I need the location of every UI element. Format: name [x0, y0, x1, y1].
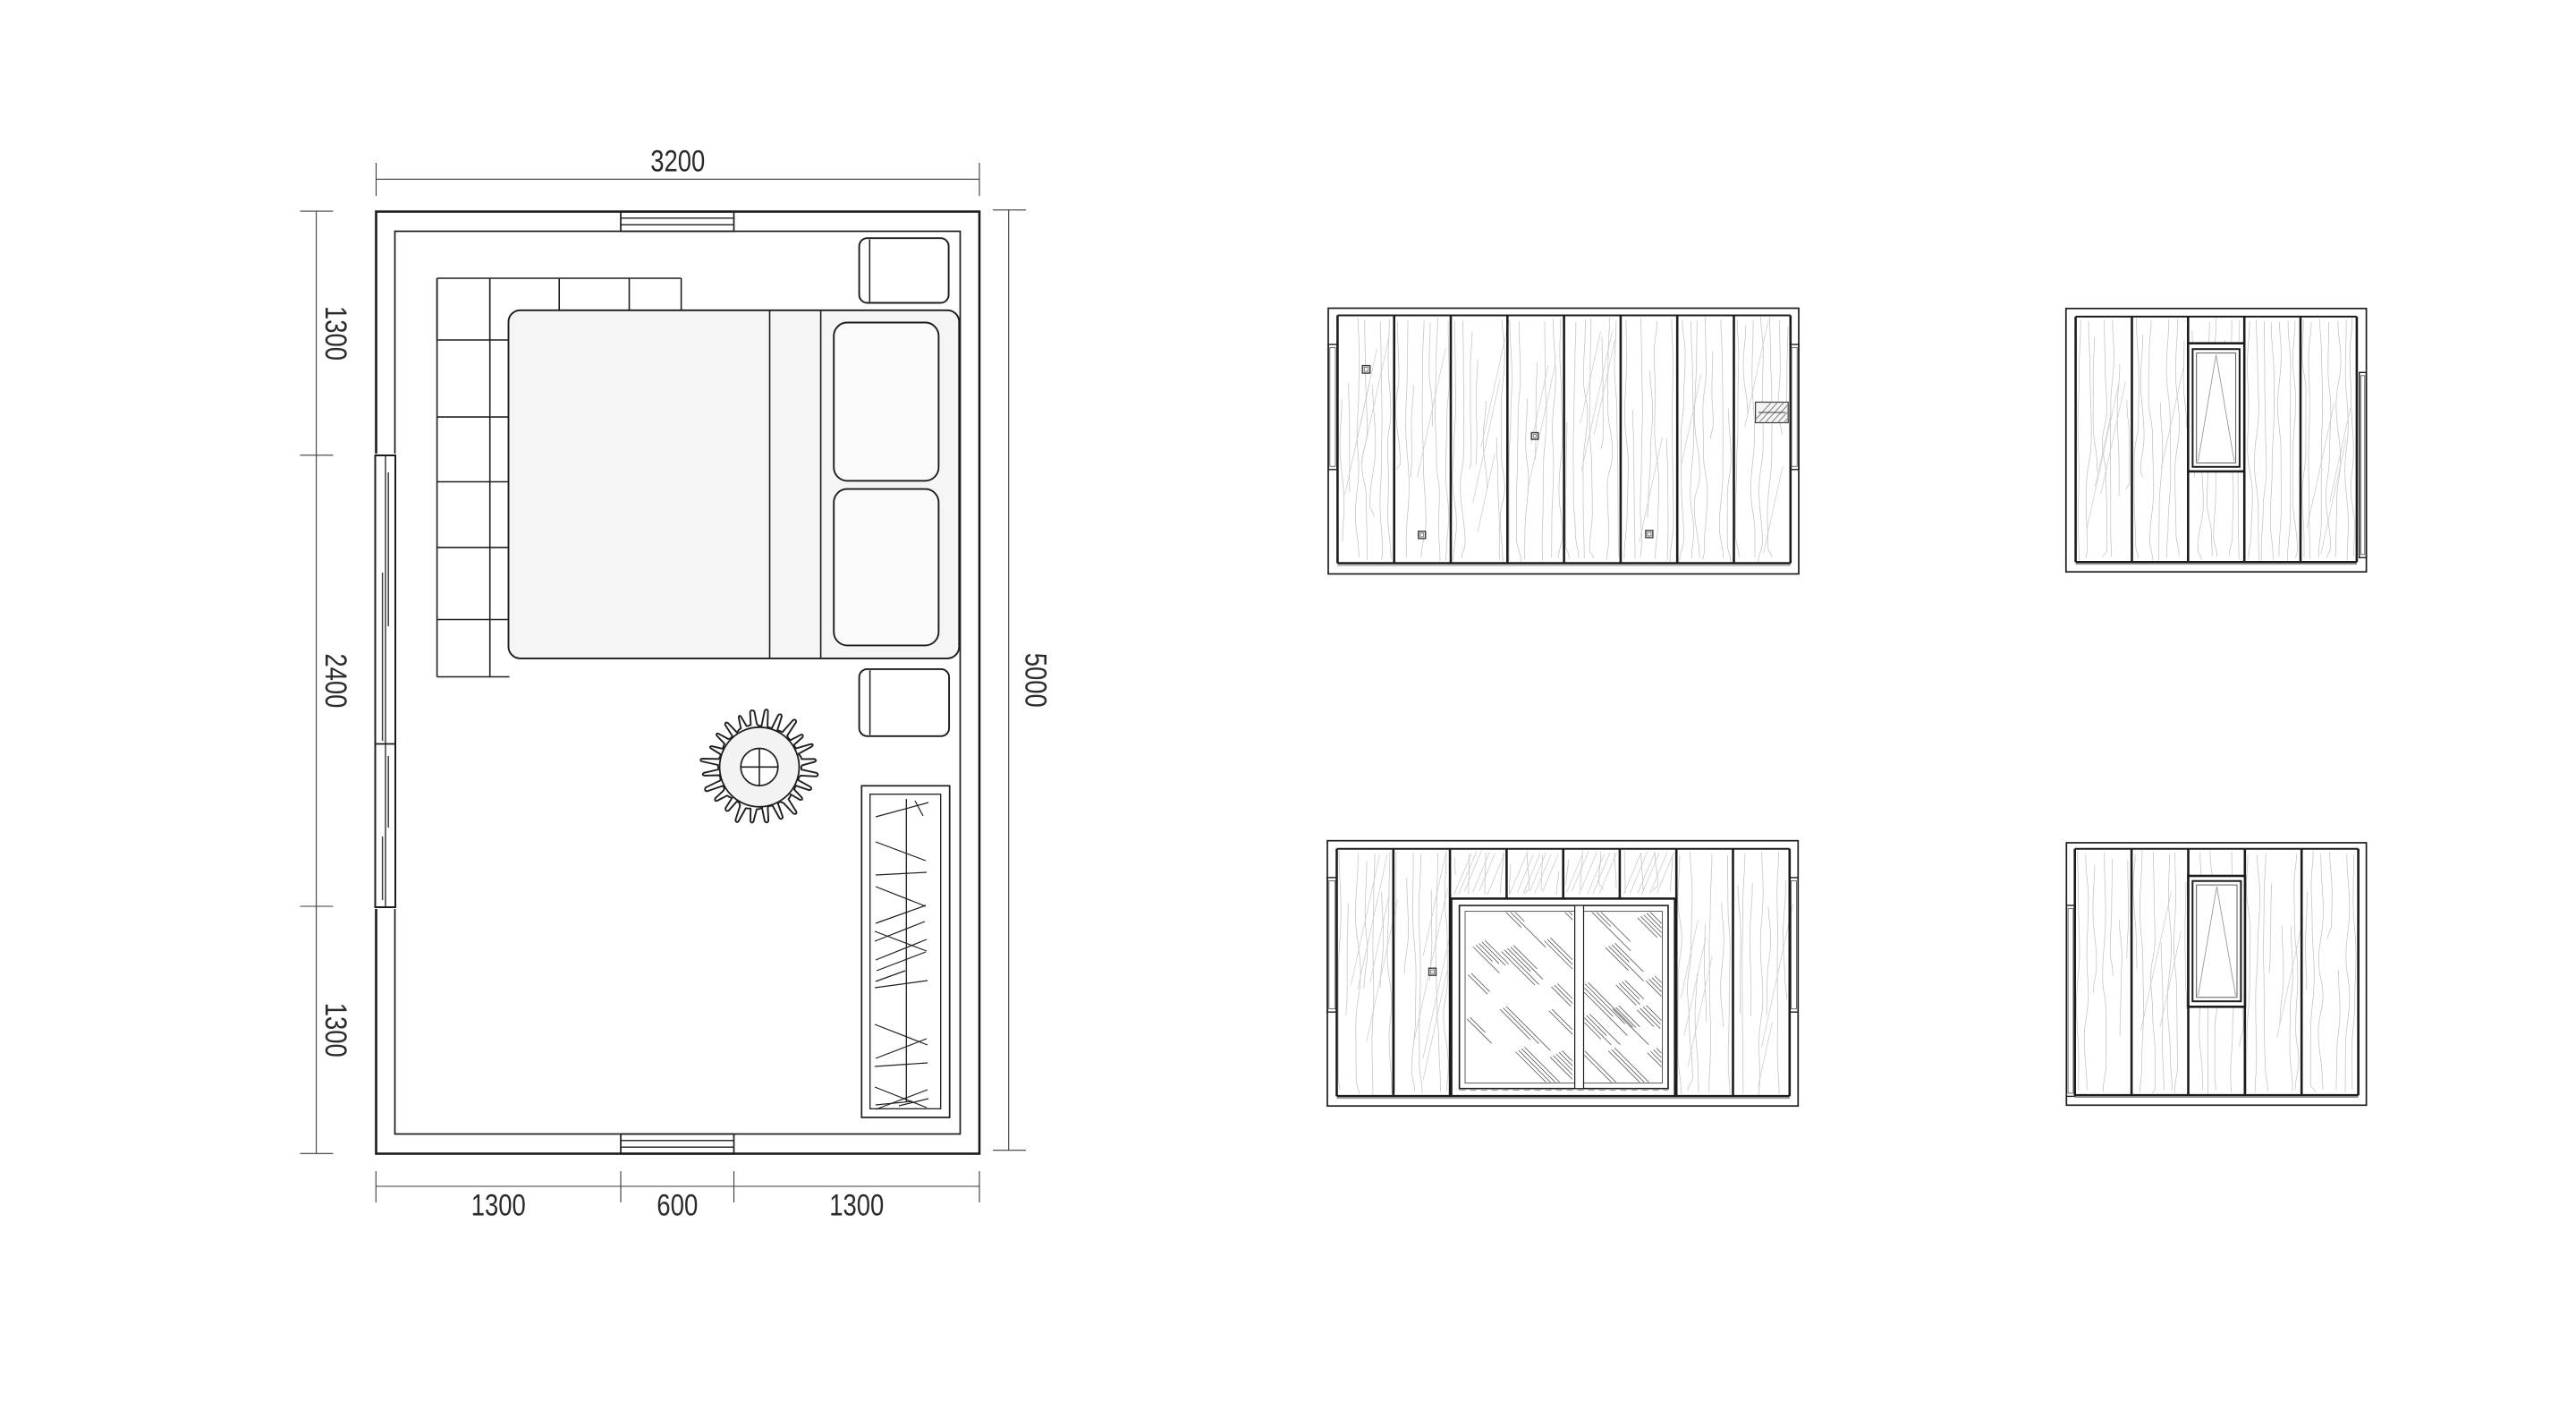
svg-text:1300: 1300 [471, 1189, 526, 1223]
svg-text:3200: 3200 [650, 145, 705, 179]
svg-text:2400: 2400 [318, 653, 352, 708]
svg-text:5000: 5000 [1018, 653, 1052, 708]
svg-text:1300: 1300 [829, 1189, 884, 1223]
svg-text:600: 600 [657, 1189, 698, 1223]
svg-text:1300: 1300 [318, 1003, 352, 1057]
svg-text:1300: 1300 [318, 306, 352, 361]
